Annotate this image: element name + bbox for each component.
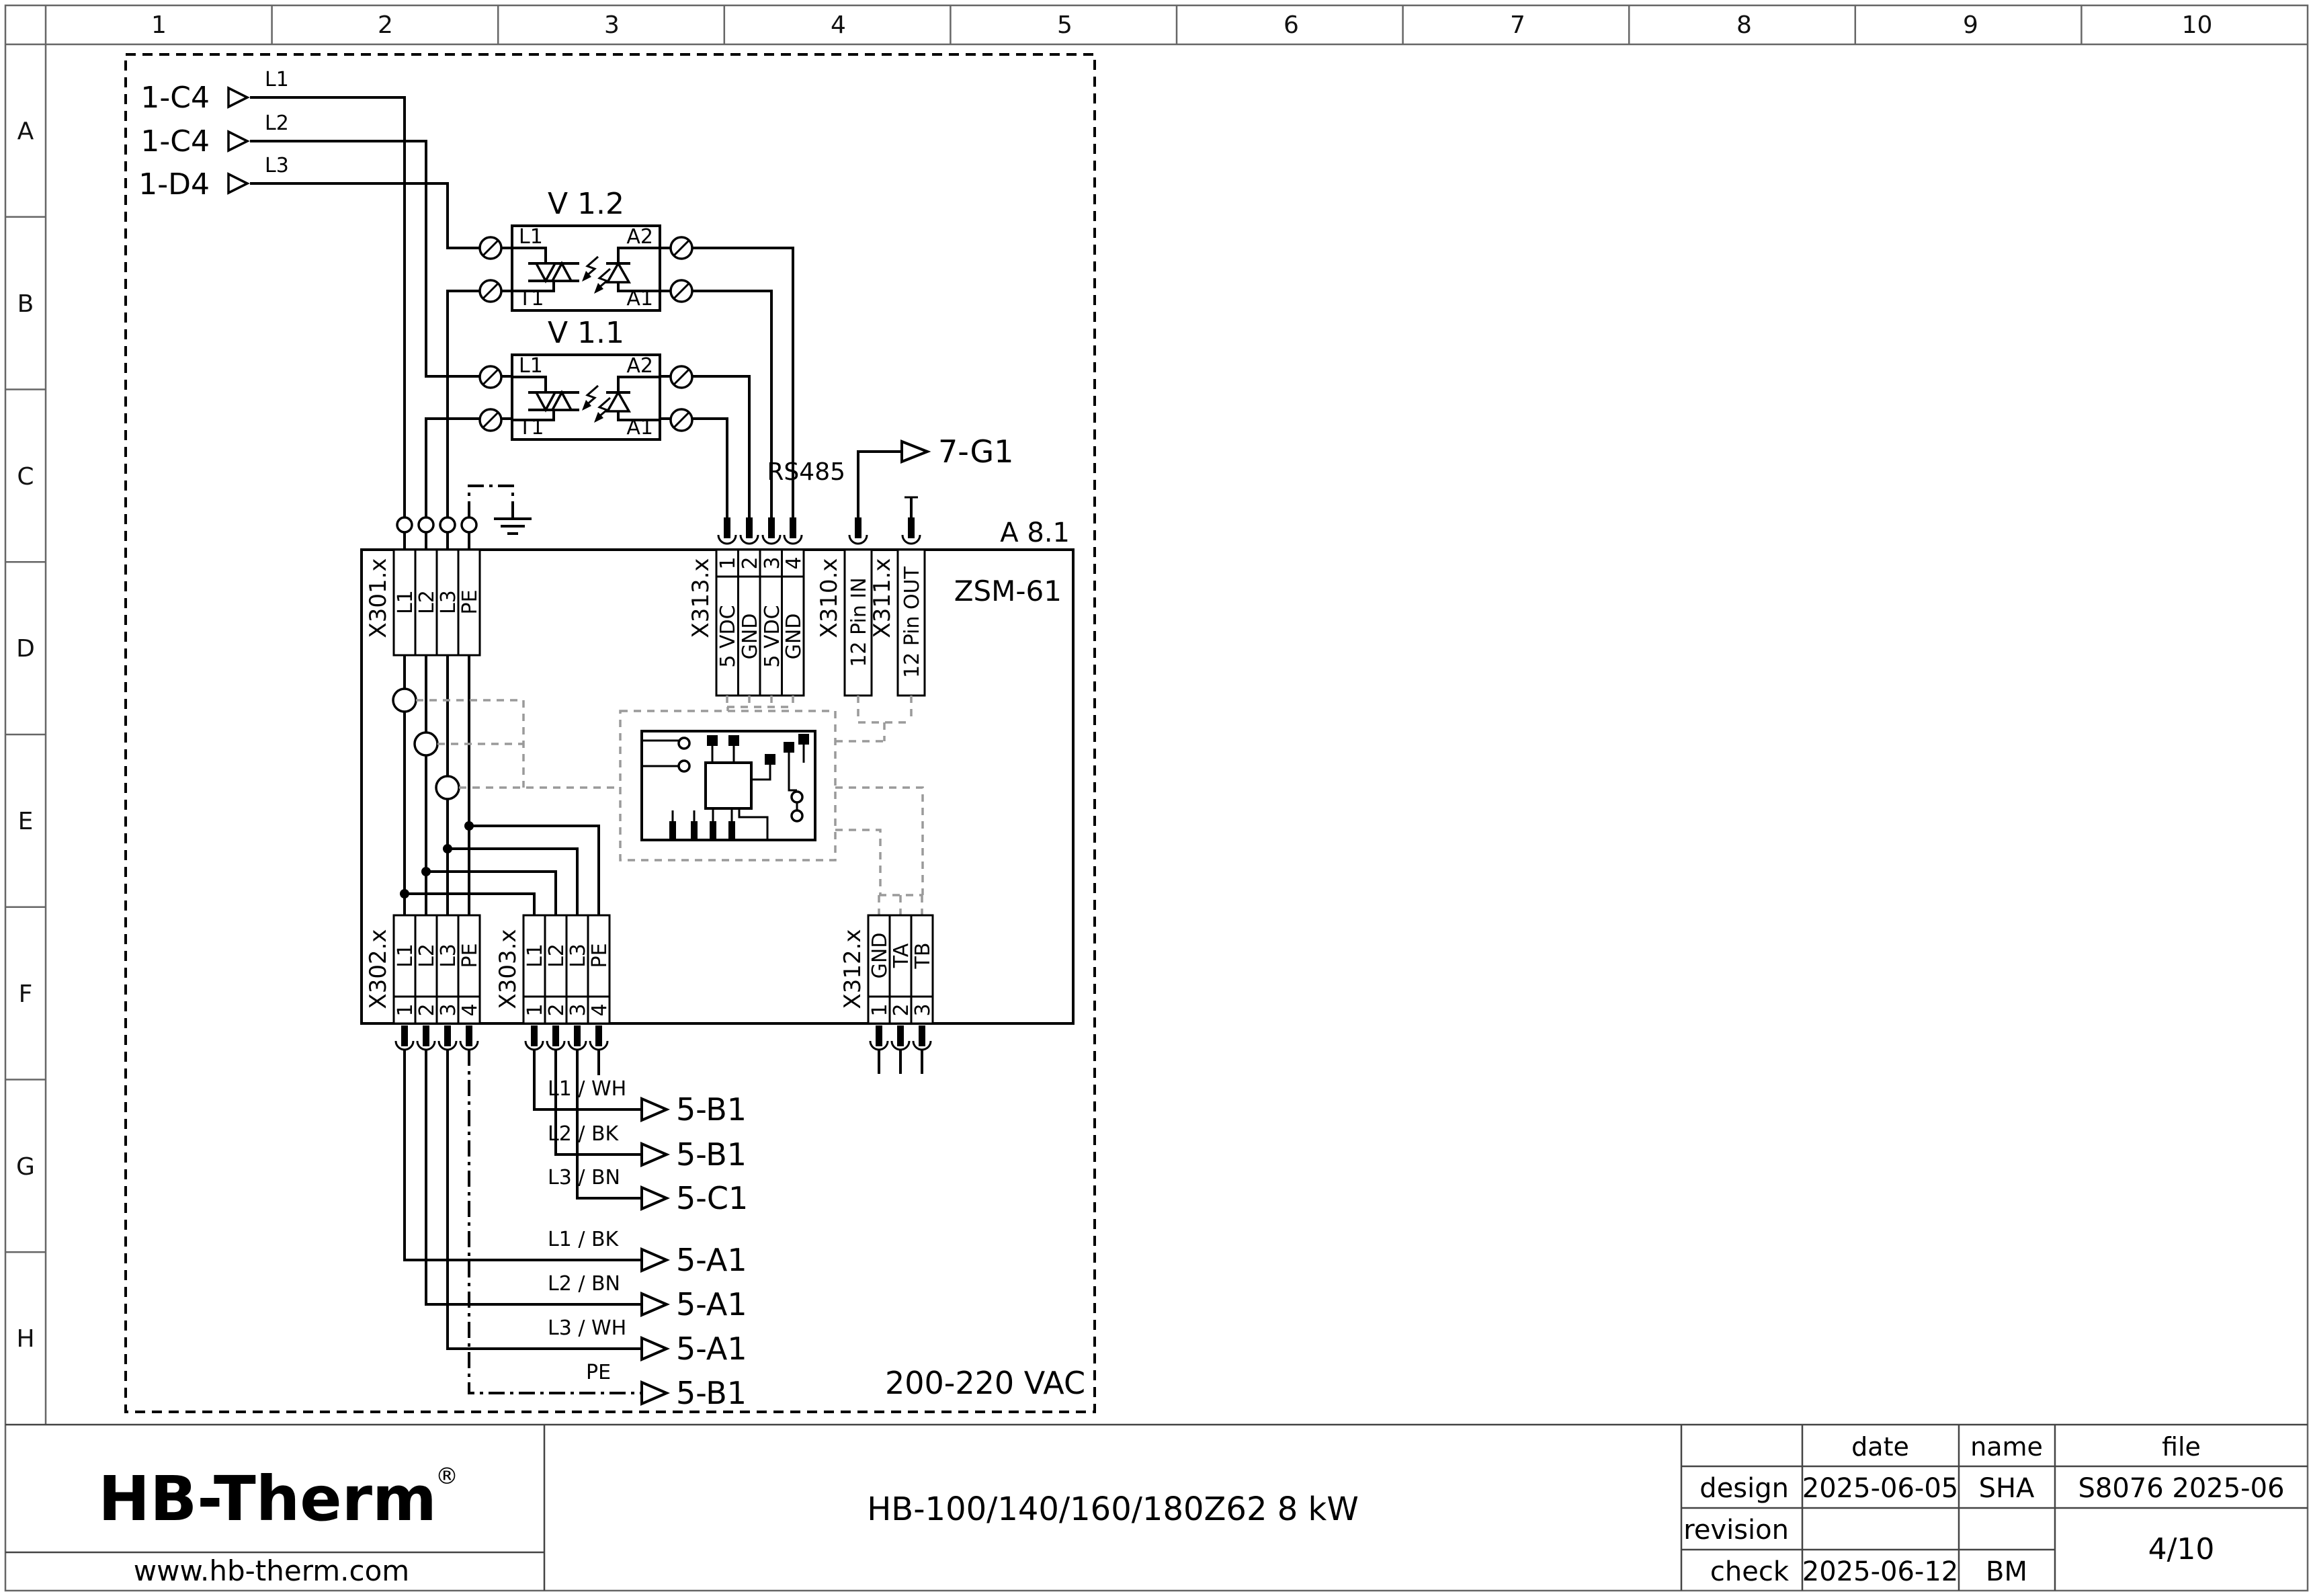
connector-name: X301.x [365, 558, 392, 638]
pin-number: 2 [415, 1003, 439, 1016]
col-header-name: name [1970, 1432, 2043, 1462]
ruler-col-10: 10 [2182, 11, 2213, 39]
ruler-row-F: F [19, 980, 33, 1008]
pin-label: L2 [545, 943, 569, 968]
input-ref-3: 1-D4 [138, 167, 210, 202]
ssr-v12: V 1.2 L1 T1 A2 A1 [480, 187, 692, 310]
title-block: HB-Therm ® www.hb-therm.com HB-100/140/1… [5, 1425, 2308, 1591]
signal-out-arrow-icon [642, 1249, 667, 1271]
page-number: 4/10 [2148, 1532, 2215, 1566]
junction-dot [464, 821, 474, 831]
signal-out-arrow-icon [642, 1294, 667, 1315]
pin-number: 3 [437, 1003, 460, 1016]
wire-label: PE [586, 1361, 611, 1384]
output-ref: 5-A1 [676, 1286, 747, 1322]
drawing-title: HB-100/140/160/180Z62 8 kW [867, 1490, 1359, 1528]
terminal-label: L1 [519, 225, 543, 249]
ruler-col-4: 4 [831, 11, 846, 39]
pin-label: 12 Pin IN [847, 577, 871, 667]
signal-out-arrow-icon [642, 1338, 667, 1359]
pin-label: PE [588, 943, 612, 968]
design-date: 2025-06-05 [1802, 1473, 1958, 1504]
ruler-col-5: 5 [1057, 11, 1073, 39]
ruler-row-H: H [16, 1325, 34, 1353]
signal-out-arrow-icon [902, 442, 927, 462]
pin-label: L1 [394, 590, 417, 614]
earth-ground-icon [494, 519, 532, 534]
module-designation: A 8.1 [1000, 517, 1070, 548]
ruler-col-8: 8 [1736, 11, 1752, 39]
terminal-label: T1 [518, 416, 544, 439]
connector-name: X310.x [816, 558, 843, 638]
wire-label: L1 / WH [548, 1077, 626, 1101]
pin-label: L2 [415, 943, 439, 968]
pin-number: 3 [911, 1003, 935, 1016]
power-wires [250, 97, 922, 1393]
internal-links [416, 696, 923, 915]
col-header-date: date [1851, 1432, 1909, 1462]
signal-in-arrow-icon [228, 174, 247, 193]
pin-label: PE [458, 589, 482, 614]
connector-name: X313.x [687, 558, 714, 638]
output-ref: 5-C1 [676, 1180, 748, 1216]
current-sensor-icon [436, 776, 459, 799]
ruler-col-7: 7 [1510, 11, 1525, 39]
terminal-label: A1 [626, 416, 653, 439]
pin-label: GND [782, 614, 806, 660]
pin-label: 5 VDC [716, 605, 740, 667]
signal-in-arrow-icon [228, 88, 247, 107]
supply-voltage-label: 200-220 VAC [885, 1365, 1085, 1401]
terminal-label: A2 [626, 225, 653, 249]
file-value: S8076 2025-06 [2078, 1473, 2284, 1504]
ruler-left-ticks [5, 217, 46, 1253]
pcb-icon [620, 711, 835, 860]
pin-number: 4 [588, 1003, 612, 1016]
ruler-top-labels: 1 2 3 4 5 6 7 8 9 10 [151, 11, 2212, 39]
signal-out-arrow-icon [642, 1144, 667, 1165]
pin-label: PE [458, 943, 482, 968]
ruler-top-ticks [272, 5, 2082, 44]
pin-number: 1 [523, 1003, 547, 1016]
signal-out-arrow-icon [642, 1187, 667, 1209]
relay-title: V 1.1 [548, 316, 624, 350]
device-boundary [126, 54, 1095, 1412]
output-ref: 5-B1 [676, 1375, 747, 1411]
check-label: check [1710, 1556, 1790, 1587]
terminal-label: A1 [626, 287, 653, 310]
ruler-col-1: 1 [151, 11, 167, 39]
connector-x311: X311.x 12 Pin OUT [869, 550, 925, 696]
pin-number: 1 [394, 1003, 417, 1016]
page-frame: 1 2 3 4 5 6 7 8 9 10 A B C D E F G H [5, 5, 2308, 1591]
check-date: 2025-06-12 [1802, 1556, 1958, 1587]
junction-dot [400, 889, 409, 898]
wire-label: L2 / BK [548, 1122, 620, 1146]
output-ref: 5-B1 [676, 1091, 747, 1128]
pin-number: 3 [566, 1003, 590, 1016]
website-text: www.hb-therm.com [134, 1554, 409, 1587]
ruler-col-6: 6 [1284, 11, 1299, 39]
pin-label: L1 [394, 943, 417, 968]
junction-dot [443, 844, 452, 853]
pin-label: L1 [523, 943, 547, 968]
ruler-row-C: C [17, 463, 34, 491]
connector-x313: X313.x 1 2 3 4 5 VDC GND 5 VDC GND [687, 550, 806, 696]
bus-label: RS485 [767, 458, 845, 486]
revision-label: revision [1683, 1515, 1789, 1546]
col-header-file: file [2162, 1432, 2201, 1462]
pin-number: 2 [890, 1003, 913, 1016]
hb-therm-logo: HB-Therm ® [98, 1463, 458, 1535]
wire-label: L1 / BK [548, 1228, 620, 1251]
connector-name: X312.x [839, 929, 866, 1009]
output-ref: 5-A1 [676, 1331, 747, 1367]
input-signals: 1-C4 L1 1-C4 L2 1-D4 L3 [138, 68, 289, 202]
design-label: design [1699, 1473, 1789, 1504]
registered-mark: ® [435, 1463, 458, 1490]
check-name: BM [1986, 1556, 2027, 1587]
wire-label: L3 / WH [548, 1316, 626, 1340]
connector-x310: X310.x 12 Pin IN [816, 550, 872, 696]
wire-label: L3 / BN [548, 1166, 620, 1189]
pin-label: TB [911, 943, 935, 970]
pin-label: 12 Pin OUT [900, 566, 924, 678]
earth-connection [469, 486, 532, 534]
signal-in-arrow-icon [228, 132, 247, 151]
current-sensor-icon [415, 732, 437, 755]
connector-name: X311.x [869, 558, 896, 638]
pin-number: 2 [545, 1003, 569, 1016]
input-ref-1: 1-C4 [140, 81, 210, 115]
connector-x303: X303.x L1 L2 L3 PE 1 2 3 4 [495, 915, 612, 1023]
connector-name: X303.x [495, 929, 521, 1009]
connector-x301: X301.x L1 L2 L3 PE [365, 550, 482, 655]
pin-number: 3 [761, 556, 784, 569]
ruler-row-B: B [17, 290, 34, 318]
ruler-row-D: D [16, 635, 35, 663]
terminal-label: A2 [626, 354, 653, 378]
input-wire-2: L2 [265, 112, 289, 135]
pin-number: 1 [716, 556, 740, 569]
ruler-col-2: 2 [378, 11, 393, 39]
ruler-col-9: 9 [1963, 11, 1978, 39]
bus-target-ref: 7-G1 [938, 433, 1013, 470]
output-ref: 5-B1 [676, 1136, 747, 1173]
schematic-page: 1 2 3 4 5 6 7 8 9 10 A B C D E F G H 1-C… [0, 0, 2313, 1596]
input-ref-2: 1-C4 [140, 124, 210, 159]
bus-signal: RS485 7-G1 [767, 433, 1013, 486]
ruler-col-3: 3 [604, 11, 620, 39]
terminal-label: L1 [519, 354, 543, 378]
connector-x312: X312.x GND TA TB 1 2 3 [839, 915, 935, 1023]
output-signals-lower: L1 / BK 5-A1 L2 / BN 5-A1 L3 / WH 5-A1 P… [548, 1228, 747, 1411]
wire-label: L2 / BN [548, 1272, 620, 1296]
pin-label: GND [739, 614, 762, 660]
logo-text: HB-Therm [98, 1463, 437, 1535]
module-type: ZSM-61 [954, 575, 1062, 607]
signal-out-arrow-icon [642, 1099, 667, 1120]
junction-dot [421, 867, 431, 876]
input-wire-3: L3 [265, 154, 289, 177]
signal-out-arrow-icon [642, 1382, 667, 1404]
pin-label: TA [890, 943, 913, 968]
pin-label: L3 [437, 590, 460, 614]
terminal-label: T1 [518, 287, 544, 310]
pin-label: L3 [566, 943, 590, 968]
pin-label: L2 [415, 590, 439, 614]
pin-label: 5 VDC [761, 605, 784, 667]
ruler-row-E: E [18, 808, 34, 835]
ssr-v11: V 1.1 L1 T1 A2 A1 [480, 316, 692, 439]
pin-label: GND [868, 933, 892, 979]
ruler-row-G: G [16, 1153, 35, 1181]
pin-label: L3 [437, 943, 460, 968]
input-wire-1: L1 [265, 68, 289, 91]
pin-number: 2 [739, 556, 762, 569]
pin-number: 1 [868, 1003, 892, 1016]
output-ref: 5-A1 [676, 1242, 747, 1278]
connector-name: X302.x [365, 929, 392, 1009]
design-name: SHA [1979, 1473, 2035, 1504]
pin-number: 4 [782, 556, 806, 569]
current-sensor-icon [393, 689, 416, 712]
ruler-row-A: A [17, 118, 34, 145]
pin-number: 4 [458, 1003, 482, 1016]
connector-x302: X302.x L1 L2 L3 PE 1 2 3 4 [365, 915, 482, 1023]
relay-title: V 1.2 [548, 187, 624, 221]
